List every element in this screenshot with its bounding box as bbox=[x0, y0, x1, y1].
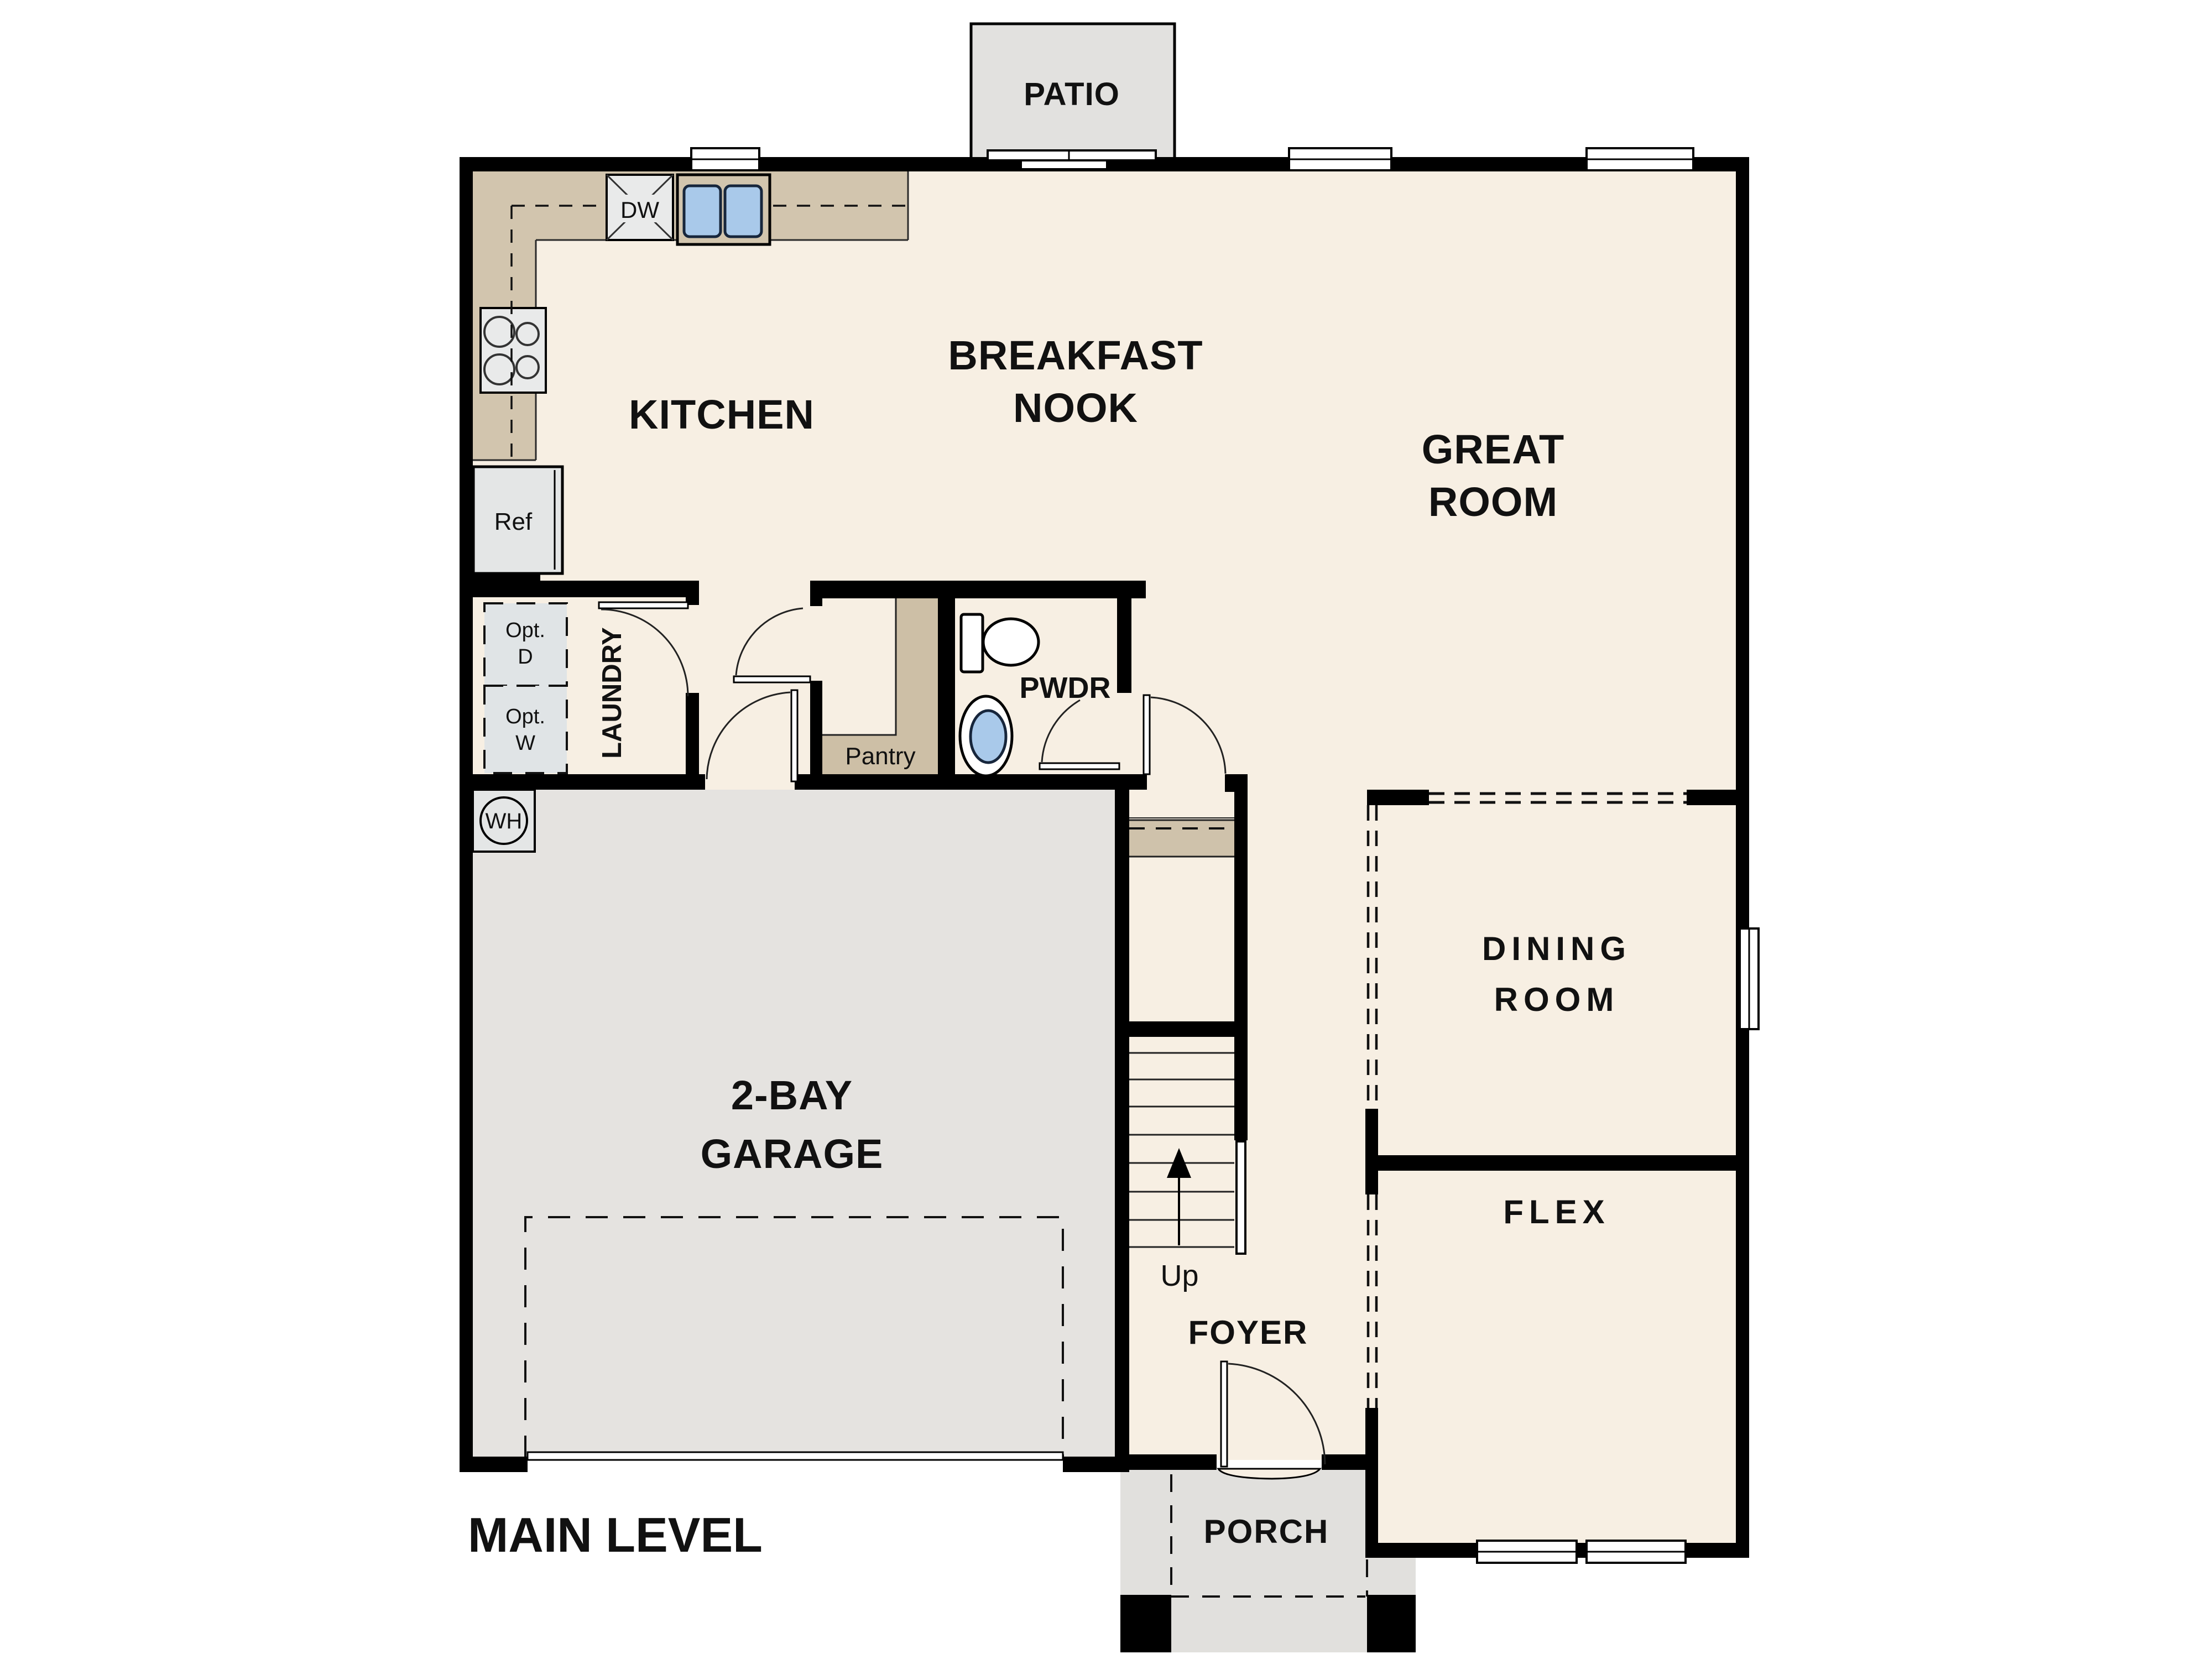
svg-text:Ref: Ref bbox=[494, 508, 533, 535]
svg-text:GARAGE: GARAGE bbox=[701, 1131, 884, 1177]
svg-text:WH: WH bbox=[486, 809, 523, 833]
svg-text:BREAKFAST: BREAKFAST bbox=[948, 332, 1203, 378]
svg-text:PWDR: PWDR bbox=[1020, 671, 1111, 705]
svg-text:KITCHEN: KITCHEN bbox=[629, 392, 815, 437]
svg-text:ROOM: ROOM bbox=[1494, 981, 1620, 1018]
svg-text:FOYER: FOYER bbox=[1188, 1314, 1308, 1351]
svg-text:D: D bbox=[518, 645, 533, 669]
svg-text:DINING: DINING bbox=[1482, 930, 1631, 967]
svg-text:GREAT: GREAT bbox=[1422, 426, 1565, 472]
svg-text:2-BAY: 2-BAY bbox=[731, 1072, 853, 1118]
svg-text:Opt.: Opt. bbox=[505, 705, 545, 728]
svg-text:LAUNDRY: LAUNDRY bbox=[597, 627, 627, 759]
svg-text:Pantry: Pantry bbox=[845, 743, 915, 770]
svg-text:Up: Up bbox=[1160, 1259, 1198, 1292]
svg-text:NOOK: NOOK bbox=[1013, 385, 1138, 431]
svg-text:W: W bbox=[515, 732, 535, 755]
svg-text:DW: DW bbox=[620, 197, 659, 223]
svg-text:ROOM: ROOM bbox=[1428, 479, 1558, 525]
svg-text:Opt.: Opt. bbox=[505, 619, 545, 642]
svg-text:MAIN LEVEL: MAIN LEVEL bbox=[468, 1507, 763, 1562]
svg-text:FLEX: FLEX bbox=[1503, 1193, 1610, 1230]
svg-text:PATIO: PATIO bbox=[1024, 76, 1120, 112]
svg-text:PORCH: PORCH bbox=[1204, 1513, 1329, 1550]
